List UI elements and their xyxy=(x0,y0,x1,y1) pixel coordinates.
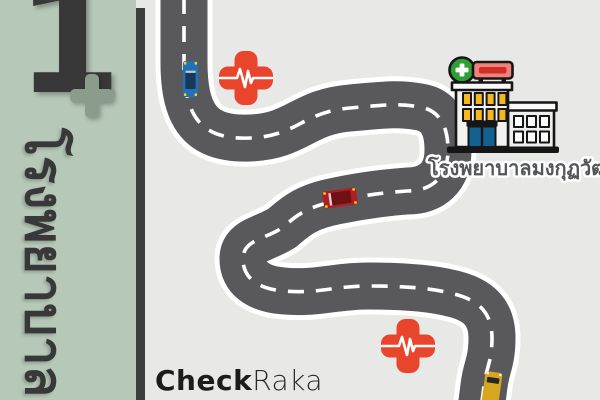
checkraka-logo: CheckRaka xyxy=(155,364,323,397)
hospital-name-label: โรงพยาบาลมงกุฏวัฒนะ xyxy=(427,156,600,181)
blue-car-icon xyxy=(183,61,198,97)
hospital-door xyxy=(467,121,498,148)
plus-icon xyxy=(70,74,114,122)
hospital-building-icon xyxy=(447,58,559,154)
logo-text-bold: Check xyxy=(155,364,252,397)
sidebar-vertical-label: โรงพยาบาล xyxy=(10,128,76,398)
medical-cross-heartbeat-icon-top xyxy=(219,51,273,105)
divider-bar xyxy=(136,8,145,400)
logo-text-light: Raka xyxy=(252,364,323,397)
medical-cross-heartbeat-icon-bottom xyxy=(381,319,435,373)
